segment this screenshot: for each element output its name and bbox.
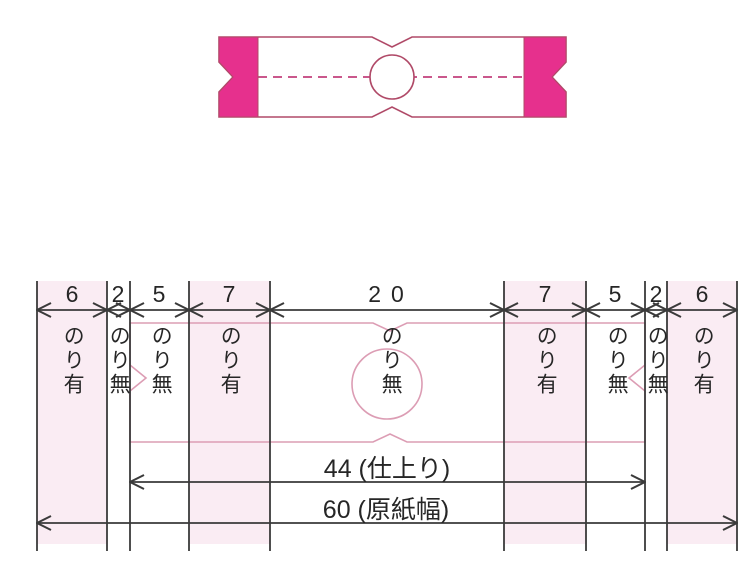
width-label-7: 5 <box>609 281 622 308</box>
paper-width-dimension-label: 60 (原紙幅) <box>323 490 449 526</box>
left-glue-end <box>219 37 258 117</box>
shaded-column-1 <box>37 281 107 544</box>
glue-label-1: のり有 <box>61 325 83 397</box>
band-center-hole <box>370 55 414 99</box>
glue-label-5: のり無 <box>379 325 401 397</box>
shaded-column-3 <box>504 281 586 544</box>
width-label-9: 6 <box>696 281 709 308</box>
width-label-2: 2 <box>112 281 125 308</box>
width-label-5: 20 <box>368 281 414 308</box>
right-glue-end <box>524 37 566 117</box>
glue-label-7: のり無 <box>605 325 627 397</box>
shaded-column-2 <box>189 281 270 544</box>
width-label-6: 7 <box>539 281 552 308</box>
glue-label-2: のり無 <box>107 325 129 397</box>
glue-label-3: のり無 <box>149 325 171 397</box>
shaded-column-4 <box>667 281 737 544</box>
glue-label-8: のり無 <box>645 325 667 397</box>
width-label-3: 5 <box>153 281 166 308</box>
width-label-1: 6 <box>66 281 79 308</box>
finished-width-dimension-label: 44 (仕上り) <box>324 449 450 485</box>
diagram-canvas: 6 2 5 7 20 7 5 2 6 のり有 のり無 のり無 のり有 のり無 の… <box>0 0 751 566</box>
width-label-8: 2 <box>650 281 663 308</box>
glue-label-6: のり有 <box>534 325 556 397</box>
glue-label-4: のり有 <box>218 325 240 397</box>
label-band-preview <box>219 37 566 117</box>
width-label-4: 7 <box>223 281 236 308</box>
glue-label-9: のり有 <box>691 325 713 397</box>
